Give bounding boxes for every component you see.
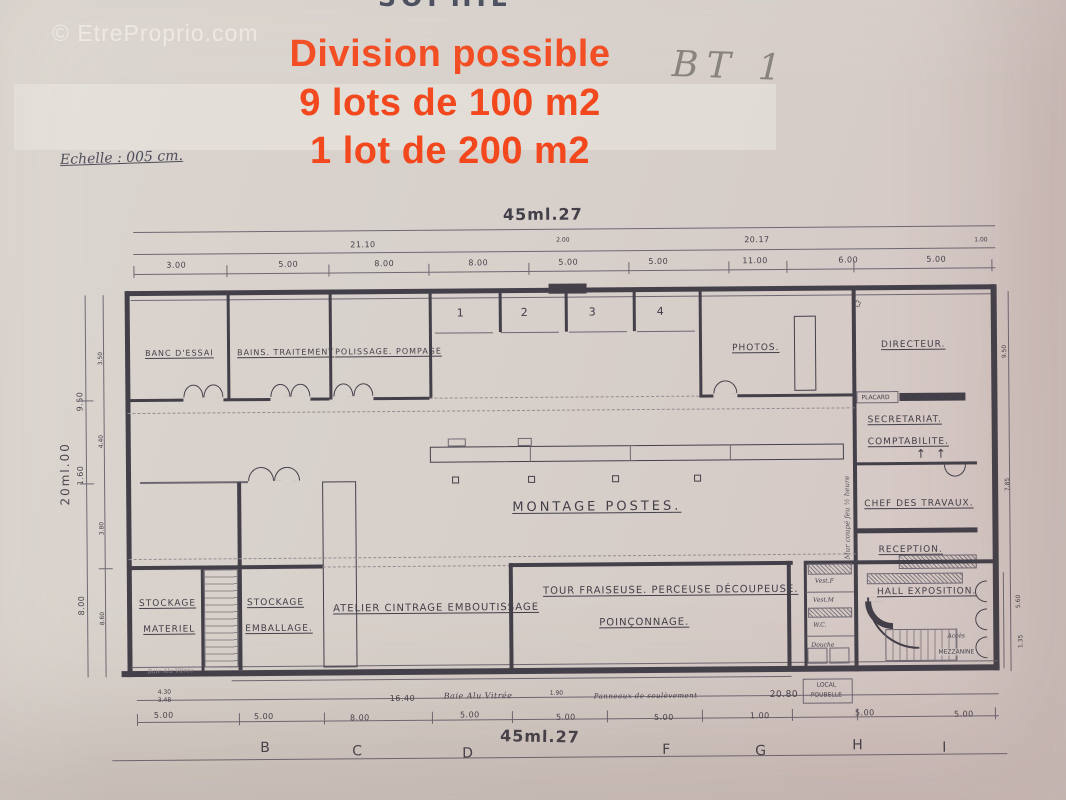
dim-tick (80, 483, 94, 484)
dim-left: 8.00 (77, 596, 86, 616)
dim-top-span: 20.17 (744, 235, 769, 244)
staircase (204, 569, 239, 667)
bay-stub-wall (565, 292, 568, 332)
bay-stub-wall (499, 292, 502, 332)
dim-top-seg: 5.00 (558, 258, 578, 267)
dim-top-seg: 8.00 (468, 258, 488, 267)
room-label-poinconnage: POINÇONNAGE. (599, 617, 689, 629)
room-label-hall-exposition: HALL EXPOSITION. (877, 586, 976, 597)
dim-bottom-seg: 5.00 (654, 713, 674, 722)
bay-line (435, 332, 493, 333)
wall-segment (230, 398, 270, 401)
wall-segment (737, 393, 854, 397)
wall-segment (511, 561, 793, 567)
room-label-wc: W.C. (813, 622, 826, 629)
dim-tick (628, 262, 629, 274)
room-label-montage-postes: MONTAGE POSTES. (512, 499, 681, 515)
post-square (452, 476, 459, 483)
dim-top-span: 21.10 (350, 240, 375, 249)
wall-segment (899, 392, 965, 401)
sanitary-box (808, 607, 852, 617)
dim-bottom: 1.90 (550, 690, 563, 697)
grid-letter: F (662, 742, 670, 758)
balcony-line (1003, 572, 1005, 668)
dim-right: 7.85 (1004, 478, 1011, 491)
dim-bottom-seg: 1.00 (750, 711, 770, 720)
curved-stair-band (865, 601, 893, 629)
room-label-atelier: ATELIER CINTRAGE EMBOUTISSAGE (333, 602, 539, 615)
room-label-secretariat: SECRETARIAT. (868, 415, 942, 426)
dim-tick (328, 264, 329, 276)
arrow-up-icon: ↑ (936, 447, 947, 461)
dim-top-total: 45ml.27 (503, 204, 583, 224)
dim-bottom-seg: 5.00 (254, 712, 274, 721)
post-square (694, 475, 701, 482)
duct-rack (322, 481, 357, 667)
door-arc (274, 467, 300, 481)
post-square (612, 475, 619, 482)
dim-line (133, 267, 995, 275)
dim-tick (79, 400, 93, 401)
workbench-bump (448, 438, 466, 446)
bay-number: 2 (521, 306, 528, 319)
dim-bottom: 4.30 (158, 689, 171, 696)
dim-bottom: 3.48 (158, 697, 171, 704)
dim-tick (991, 259, 992, 271)
note-mur-coupe-feu: Mur coupé feu ½ heure (843, 476, 852, 560)
partition-wall (227, 294, 231, 400)
dim-top-seg: 3.00 (166, 261, 186, 270)
scanned-floorplan-photo: SOPHIE © EtreProprio.com BT 1 Echelle : … (0, 0, 1066, 800)
dim-bottom-total: 45ml.27 (500, 726, 580, 746)
dim-bottom-seg: 5.00 (154, 711, 174, 720)
workbench (430, 443, 844, 462)
post-square (528, 476, 535, 483)
guide-line (323, 565, 511, 567)
guide-line (128, 407, 855, 414)
door-arc (944, 464, 966, 476)
dim-left-inner: 3.80 (98, 522, 105, 535)
grid-letter: H (852, 737, 863, 753)
dim-tick (702, 710, 703, 722)
room-label-tour-fraiseuse: TOUR FRAISEUSE. PERCEUSE DÉCOUPEUSE. (543, 584, 799, 597)
dim-bottom: 16.40 (390, 694, 415, 703)
dim-bottom-seg: 5.00 (460, 710, 480, 719)
dim-right: 1.35 (1017, 635, 1024, 648)
room-label-directeur: DIRECTEUR. (881, 340, 945, 351)
dim-tick (607, 710, 608, 722)
dim-tick (728, 261, 729, 273)
room-label-photos: PHOTOS. (732, 343, 780, 353)
exterior-wall-left (125, 291, 133, 677)
floorplan-drawing: 45ml.27 21.10 2.00 20.17 1.00 3.00 5.00 … (0, 0, 1066, 800)
door-arc (975, 608, 987, 630)
dim-tick (99, 568, 113, 569)
room-label-stockage-materiel: STOCKAGE (139, 599, 196, 609)
dim-tick (432, 712, 433, 724)
room-label-vest-m: Vest.M (813, 597, 834, 604)
dim-left-inner: 8.60 (99, 612, 106, 625)
guide-line (429, 396, 699, 399)
bay-line (637, 331, 695, 332)
dim-bottom: 20.80 (770, 690, 798, 700)
wall-segment (373, 397, 429, 400)
dim-tick (786, 261, 787, 273)
door-arc (183, 384, 203, 397)
room-label-comptabilite: COMPTABILITE. (868, 437, 949, 448)
room-label-polissage-pompage: POLISSAGE. POMPAGE (335, 347, 442, 357)
dim-left-inner: 3.50 (97, 352, 104, 365)
room-label-stockage-emballage: STOCKAGE (247, 598, 304, 608)
dim-line (112, 753, 1007, 761)
note-mezzanine: MEZZANINE (937, 648, 975, 655)
sanitary-line (806, 591, 854, 592)
partition-wall (787, 561, 792, 668)
door-arc (975, 636, 987, 658)
dim-top-seg: 5.00 (648, 257, 668, 266)
door-arc (975, 580, 987, 602)
wall-segment (310, 397, 329, 400)
room-label-vest-f: Vest.F (815, 578, 834, 585)
dim-top-seg: 5.00 (278, 260, 298, 269)
dim-top-seg: 8.00 (374, 259, 394, 268)
dim-tick (324, 713, 325, 725)
room-label-banc-essai: BANC D'ESSAI (145, 348, 214, 358)
workbench-divider (530, 446, 531, 462)
note-acces: Accès (947, 633, 965, 640)
wall-segment (855, 527, 977, 533)
room-label-stockage-emballage-2: EMBALLAGE. (245, 624, 313, 635)
door-arc (270, 384, 290, 397)
grid-letter: I (942, 740, 946, 756)
door-arc (248, 467, 274, 481)
door-arc (203, 384, 223, 397)
dim-top-span: 1.00 (974, 236, 987, 243)
workbench-divider (730, 444, 731, 460)
dim-line (133, 225, 995, 233)
bay-line (501, 332, 559, 333)
dim-top-seg: 6.00 (838, 255, 858, 264)
dim-tick (995, 707, 996, 719)
dim-tick (792, 709, 793, 721)
bay-line (569, 331, 627, 332)
dim-tick (512, 711, 513, 723)
exterior-wall-right (991, 284, 1000, 670)
sanitary-box (808, 563, 852, 574)
star-mark: ✩ (853, 297, 863, 310)
dim-line (85, 295, 89, 677)
dim-line (133, 247, 995, 255)
partition-wall-right-column (852, 289, 859, 671)
note-baie-alu: Baie Alu Vitrée (444, 691, 513, 701)
dim-tick (133, 266, 134, 278)
note-panneaux: Panneaux de soulèvement (594, 692, 698, 701)
door-arc (290, 384, 310, 397)
wall-segment (127, 399, 183, 402)
dim-tick (226, 265, 227, 277)
dim-top-seg: 11.00 (742, 256, 767, 265)
room-label-bains-traitement: BAINS. TRAITEMENT (237, 347, 334, 357)
dim-line (137, 693, 999, 701)
dim-top-span: 2.00 (556, 237, 569, 244)
door-arc (353, 383, 373, 396)
bay-number: 1 (457, 306, 464, 319)
door-arc (713, 380, 737, 393)
dim-tick (528, 263, 529, 275)
cabinet (794, 316, 817, 391)
dim-bottom-seg: 5.00 (954, 709, 974, 718)
arrow-up-icon: ↑ (916, 447, 927, 461)
grid-letter: C (352, 743, 362, 759)
display-band (867, 573, 963, 585)
dim-bottom-seg: 5.00 (855, 708, 875, 717)
room-label-local: LOCAL (817, 682, 837, 689)
dim-top-seg: 5.00 (926, 255, 946, 264)
grid-letter: G (755, 743, 766, 759)
sanitary-box (829, 647, 849, 663)
bay-stub-wall (633, 291, 636, 331)
room-label-reception: RECEPTION. (879, 545, 943, 556)
workbench-divider (630, 445, 631, 461)
sanitary-box (807, 648, 827, 664)
dim-bottom-seg: 5.00 (556, 713, 576, 722)
dim-bottom-seg: 8.00 (350, 713, 370, 722)
dim-tick (239, 713, 240, 725)
dim-tick (137, 714, 138, 726)
dim-left-total: 20ml.00 (58, 442, 72, 505)
window-line (232, 676, 792, 681)
note-baie-left: Baie Alu Vitrée (147, 667, 193, 675)
wall-segment (223, 398, 230, 401)
dim-right: 5.60 (1015, 595, 1022, 608)
grid-letter: B (260, 740, 270, 756)
partition-wall (509, 563, 514, 670)
room-label-chef-travaux: CHEF DES TRAVAUX. (864, 498, 973, 509)
dim-left-inner: 4.40 (98, 435, 105, 448)
workbench-bump (518, 438, 532, 446)
wall-segment (140, 481, 248, 484)
grid-letter: D (462, 745, 473, 761)
dim-left: 9.50 (75, 392, 84, 412)
room-label-placard: PLACARD (861, 394, 889, 401)
dim-tick (428, 264, 429, 276)
door-arc (333, 383, 353, 396)
bay-number: 4 (657, 305, 664, 318)
dim-right: 9.50 (1001, 345, 1008, 358)
sanitary-line (806, 635, 854, 636)
wall-segment (699, 394, 713, 397)
bay-number: 3 (589, 305, 596, 318)
partition-wall (699, 291, 703, 397)
room-label-stockage-materiel-2: MATERIEL (143, 625, 195, 635)
